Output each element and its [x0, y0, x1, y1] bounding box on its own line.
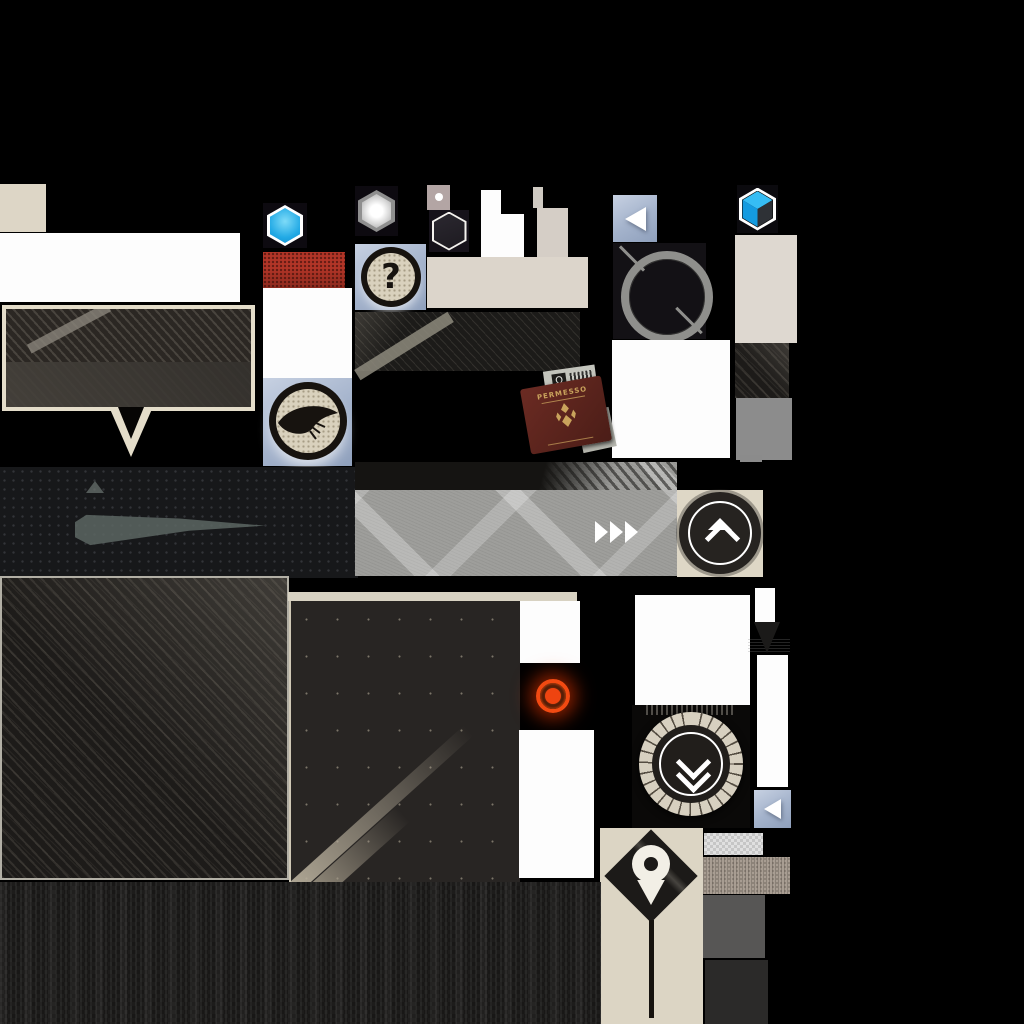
white-column-left: [519, 730, 594, 878]
pin-pole: [649, 920, 654, 1018]
pointer-down-icon: [754, 622, 780, 653]
dark-strip-texture: [355, 312, 580, 371]
question-icon: ?: [381, 260, 401, 294]
speech-bubble-tail-inner: [118, 407, 144, 439]
speckle-dark-panel: [289, 601, 520, 882]
cube-icon: [739, 188, 776, 231]
passport-footer-line: [548, 437, 593, 446]
hexagon-dark-icon: [432, 212, 467, 251]
white-chip-b: [481, 214, 524, 257]
white-panel-top-left: [0, 233, 240, 302]
strip-streak: [354, 312, 454, 380]
hand-stamp-button[interactable]: [263, 378, 352, 466]
cube-tile: [737, 185, 778, 233]
white-chip-a: [481, 190, 501, 214]
scroll-down-button[interactable]: [639, 712, 743, 816]
gray-hexagon-tile: [355, 186, 398, 236]
banner-dark-band: [355, 462, 677, 490]
gray-chip: [533, 187, 543, 208]
grain-swatch: [703, 857, 790, 894]
back-arrow-icon: [625, 207, 646, 231]
passport-crest-icon: [552, 400, 580, 430]
record-indicator: [536, 679, 570, 713]
hexagon-icon: [267, 205, 303, 246]
dot-marker-tile: [427, 185, 450, 210]
back-arrow-small-icon: [764, 799, 781, 819]
gray-swatch-b: [703, 895, 765, 958]
speech-bubble: [2, 305, 255, 411]
beige-top-bar: [288, 592, 577, 601]
dark-swatch-b: [705, 960, 768, 1024]
dot-icon: [435, 193, 443, 201]
chevron-up-icon: [708, 518, 735, 551]
white-panel-mid-right: [612, 340, 730, 458]
white-column-right: [757, 655, 788, 787]
hand-icon: [269, 382, 347, 460]
scroll-up-panel: [677, 490, 763, 577]
framed-dark-panel: [0, 576, 289, 880]
dark-scratch-swatch: [735, 343, 789, 398]
passport-cover: PERMESSO: [520, 375, 612, 454]
white-panel-left: [263, 288, 352, 378]
sprite-atlas-sheet: ?: [0, 0, 1024, 1024]
gray-swatch-a: [736, 398, 792, 460]
beige-swatch-small: [0, 184, 46, 232]
passport-title: PERMESSO: [521, 382, 603, 404]
back-button-large[interactable]: [613, 195, 657, 242]
hexagon-outline-icon: [358, 190, 395, 232]
white-chip-c: [520, 601, 580, 663]
fast-forward-icon[interactable]: [595, 521, 640, 543]
dark-dot-strip: [0, 467, 358, 578]
bubble-dark-band: [6, 362, 251, 409]
record-dot-icon: [545, 688, 561, 704]
banner-panel: [355, 462, 677, 576]
smear-fleck: [86, 481, 104, 493]
chevron-down-icon: [679, 750, 706, 788]
black-hexagon-tile: [429, 210, 469, 252]
beige-bar-wide: [427, 257, 588, 308]
beige-column: [735, 235, 797, 343]
blue-hexagon-tile: [263, 203, 307, 248]
scroll-up-button[interactable]: [679, 492, 761, 574]
red-texture-swatch: [263, 252, 345, 288]
striped-floor-texture: [0, 882, 601, 1024]
map-pin-icon: [632, 845, 670, 883]
passport-sprite: Ω PERMESSO: [517, 366, 615, 458]
scroll-down-tile: [632, 705, 750, 828]
gray-bar-small: [740, 455, 762, 462]
help-button[interactable]: ?: [355, 244, 426, 310]
reticle-tile: [613, 243, 706, 339]
speckle-streak: [289, 725, 474, 882]
white-chip-d: [755, 588, 775, 623]
map-pin-sign[interactable]: [600, 828, 703, 1024]
paint-smear: [75, 512, 265, 548]
back-button-small[interactable]: [754, 790, 791, 828]
beige-chip: [537, 208, 568, 257]
white-panel-right: [635, 595, 750, 708]
checker-swatch: [704, 833, 763, 855]
